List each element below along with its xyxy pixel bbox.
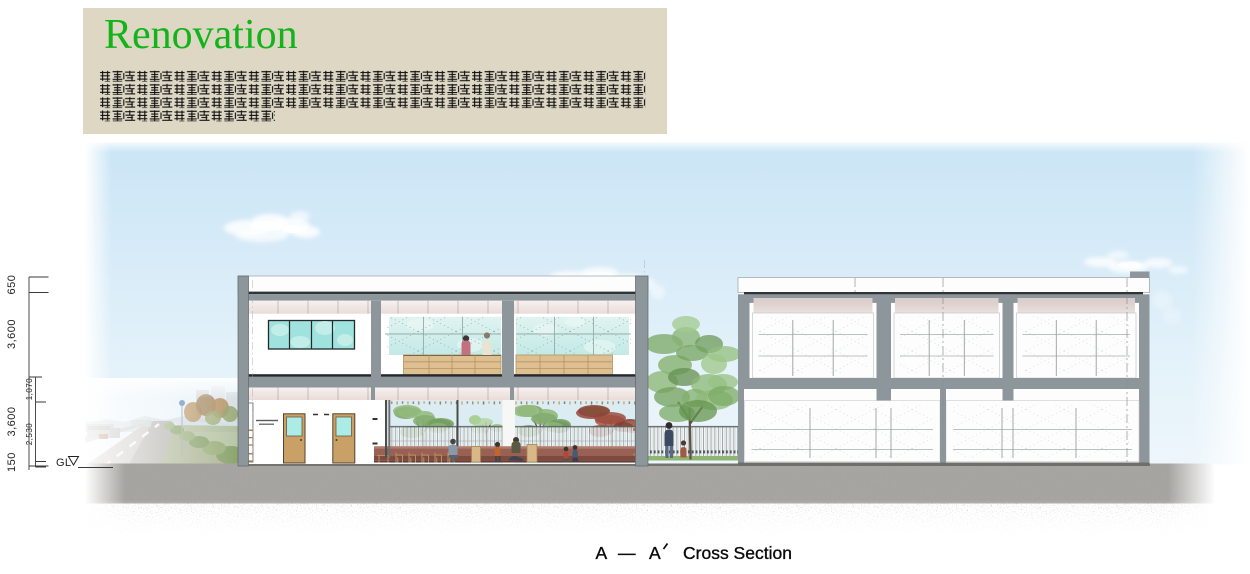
svg-text:1,070: 1,070: [25, 378, 34, 401]
svg-text:3,600: 3,600: [6, 406, 18, 436]
svg-text:A: A: [649, 543, 661, 563]
svg-text:—: —: [618, 543, 636, 563]
svg-text:2,530: 2,530: [25, 423, 34, 446]
svg-text:150: 150: [6, 452, 18, 472]
svg-text:A: A: [596, 543, 608, 563]
svg-text:GL: GL: [56, 457, 71, 469]
svg-text:3,600: 3,600: [6, 319, 18, 349]
svg-text:Renovation: Renovation: [104, 12, 298, 58]
svg-text:650: 650: [6, 275, 18, 295]
svg-text:Cross Section: Cross Section: [683, 543, 792, 563]
